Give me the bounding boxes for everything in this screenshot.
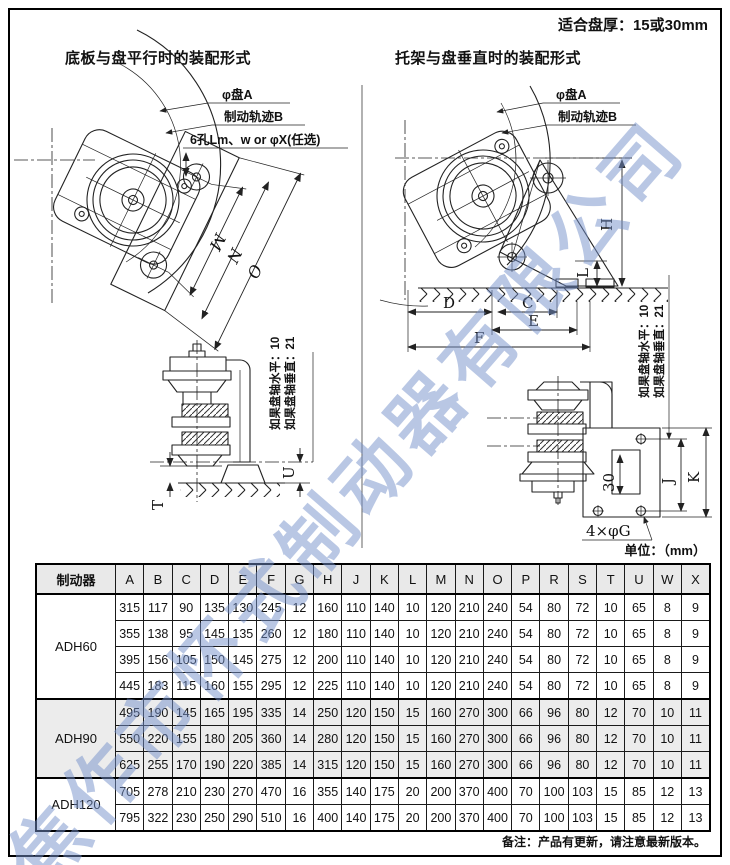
value-cell: 120	[342, 752, 370, 779]
datasheet-page: 适合盘厚：15或30mm 底板与盘平行时的装配形式 托架与盘垂直时的装配形式	[0, 0, 730, 865]
value-cell: 10	[653, 726, 681, 752]
value-cell: 16	[285, 778, 313, 805]
value-cell: 510	[257, 805, 285, 832]
value-cell: 360	[257, 726, 285, 752]
bolt-holes-label: 4×φG	[586, 522, 631, 540]
value-cell: 96	[540, 699, 568, 726]
axis-note-horizontal: 如果盘轴水平：10	[637, 305, 651, 398]
table-row: ADH6031511790135130245121601101401012021…	[36, 594, 710, 621]
value-cell: 180	[314, 621, 342, 647]
value-cell: 280	[314, 726, 342, 752]
table-row: 5502201551802053601428012015015160270300…	[36, 726, 710, 752]
value-cell: 210	[455, 594, 483, 621]
column-header: U	[625, 564, 653, 594]
column-header: P	[512, 564, 540, 594]
value-cell: 278	[144, 778, 172, 805]
value-cell: 115	[172, 673, 200, 700]
value-cell: 70	[625, 699, 653, 726]
value-cell: 138	[144, 621, 172, 647]
value-cell: 70	[625, 752, 653, 779]
value-cell: 10	[398, 621, 426, 647]
value-cell: 150	[370, 752, 398, 779]
value-cell: 70	[512, 805, 540, 832]
value-cell: 90	[172, 594, 200, 621]
header-row: 制动器 ABCDEFGHJKLMNOPRSTUWX	[36, 564, 710, 594]
value-cell: 10	[597, 621, 625, 647]
value-cell: 66	[512, 752, 540, 779]
column-header: B	[144, 564, 172, 594]
value-cell: 400	[483, 805, 511, 832]
column-header: S	[568, 564, 596, 594]
value-cell: 14	[285, 726, 313, 752]
value-cell: 8	[653, 621, 681, 647]
value-cell: 140	[370, 594, 398, 621]
value-cell: 80	[568, 726, 596, 752]
value-cell: 370	[455, 805, 483, 832]
value-cell: 80	[568, 699, 596, 726]
unit-label: 单位：（mm）	[624, 540, 706, 559]
value-cell: 250	[200, 805, 228, 832]
dim-d-label: D	[443, 294, 455, 312]
value-cell: 54	[512, 647, 540, 673]
dim-30-label: 30	[600, 473, 618, 492]
value-cell: 200	[427, 778, 455, 805]
dim-l-label: L	[574, 268, 592, 278]
value-cell: 54	[512, 673, 540, 700]
value-cell: 15	[398, 699, 426, 726]
value-cell: 72	[568, 647, 596, 673]
left-disc-label: φ盘A	[222, 87, 252, 102]
value-cell: 495	[116, 699, 144, 726]
value-cell: 155	[229, 673, 257, 700]
value-cell: 335	[257, 699, 285, 726]
value-cell: 10	[597, 594, 625, 621]
value-cell: 12	[285, 621, 313, 647]
model-cell: ADH90	[36, 699, 116, 778]
value-cell: 240	[483, 647, 511, 673]
value-cell: 80	[540, 647, 568, 673]
value-cell: 275	[257, 647, 285, 673]
value-cell: 16	[285, 805, 313, 832]
value-cell: 150	[200, 647, 228, 673]
value-cell: 14	[285, 699, 313, 726]
value-cell: 225	[314, 673, 342, 700]
model-cell: ADH60	[36, 594, 116, 699]
spec-table: 制动器 ABCDEFGHJKLMNOPRSTUWX ADH60315117901…	[35, 563, 711, 832]
value-cell: 80	[540, 673, 568, 700]
value-cell: 210	[455, 621, 483, 647]
column-header: E	[229, 564, 257, 594]
dim-c-label: C	[522, 294, 533, 312]
value-cell: 150	[370, 726, 398, 752]
value-cell: 85	[625, 805, 653, 832]
value-cell: 110	[342, 594, 370, 621]
value-cell: 11	[681, 752, 710, 779]
table-row: 6252551701902203851431512015015160270300…	[36, 752, 710, 779]
value-cell: 210	[455, 647, 483, 673]
value-cell: 195	[229, 699, 257, 726]
value-cell: 245	[257, 594, 285, 621]
value-cell: 20	[398, 778, 426, 805]
value-cell: 315	[314, 752, 342, 779]
table-row: ADH1207052782102302704701635514017520200…	[36, 778, 710, 805]
value-cell: 10	[597, 673, 625, 700]
value-cell: 140	[370, 673, 398, 700]
value-cell: 175	[370, 778, 398, 805]
value-cell: 20	[398, 805, 426, 832]
dim-j-label: J	[659, 478, 677, 486]
value-cell: 70	[625, 726, 653, 752]
value-cell: 11	[681, 726, 710, 752]
value-cell: 230	[200, 778, 228, 805]
value-cell: 100	[540, 778, 568, 805]
dim-u-label: U	[280, 466, 298, 479]
value-cell: 160	[200, 673, 228, 700]
value-cell: 370	[455, 778, 483, 805]
value-cell: 270	[455, 726, 483, 752]
value-cell: 240	[483, 673, 511, 700]
column-header: T	[597, 564, 625, 594]
left-track-label: 制动轨迹B	[224, 109, 283, 124]
value-cell: 54	[512, 594, 540, 621]
column-header: O	[483, 564, 511, 594]
value-cell: 110	[342, 673, 370, 700]
value-cell: 8	[653, 647, 681, 673]
value-cell: 200	[427, 805, 455, 832]
value-cell: 10	[653, 699, 681, 726]
value-cell: 220	[229, 752, 257, 779]
value-cell: 300	[483, 752, 511, 779]
value-cell: 8	[653, 594, 681, 621]
value-cell: 9	[681, 647, 710, 673]
column-header: W	[653, 564, 681, 594]
value-cell: 155	[172, 726, 200, 752]
right-track-label: 制动轨迹B	[558, 109, 617, 124]
dim-e-label: E	[528, 312, 539, 330]
value-cell: 72	[568, 621, 596, 647]
value-cell: 322	[144, 805, 172, 832]
value-cell: 11	[681, 699, 710, 726]
value-cell: 120	[427, 594, 455, 621]
value-cell: 10	[398, 594, 426, 621]
right-disc-label: φ盘A	[556, 87, 586, 102]
value-cell: 10	[398, 647, 426, 673]
value-cell: 200	[314, 647, 342, 673]
value-cell: 355	[314, 778, 342, 805]
value-cell: 12	[285, 594, 313, 621]
value-cell: 145	[229, 647, 257, 673]
value-cell: 12	[285, 673, 313, 700]
table-row: 3951561051501452751220011014010120210240…	[36, 647, 710, 673]
value-cell: 190	[200, 752, 228, 779]
value-cell: 190	[144, 699, 172, 726]
value-cell: 175	[370, 805, 398, 832]
value-cell: 145	[200, 621, 228, 647]
table-row: ADH9049519014516519533514250120150151602…	[36, 699, 710, 726]
column-header: C	[172, 564, 200, 594]
value-cell: 130	[229, 594, 257, 621]
value-cell: 220	[144, 726, 172, 752]
value-cell: 65	[625, 621, 653, 647]
value-cell: 140	[342, 805, 370, 832]
value-cell: 9	[681, 673, 710, 700]
right-assembly-diagram: H L D C E F 如果盘轴水平：10 如果盘轴垂直：21	[380, 86, 668, 398]
value-cell: 140	[370, 647, 398, 673]
value-cell: 13	[681, 805, 710, 832]
table-row: 7953222302502905101640014017520200370400…	[36, 805, 710, 832]
left-holes-label: 6孔Lm、w or φX(任选)	[190, 132, 320, 147]
value-cell: 170	[172, 752, 200, 779]
value-cell: 14	[285, 752, 313, 779]
value-cell: 72	[568, 594, 596, 621]
table-row: 4451831151601552951222511014010120210240…	[36, 673, 710, 700]
value-cell: 300	[483, 699, 511, 726]
column-header: D	[200, 564, 228, 594]
value-cell: 12	[653, 805, 681, 832]
value-cell: 395	[116, 647, 144, 673]
column-header: J	[342, 564, 370, 594]
value-cell: 10	[597, 647, 625, 673]
side-view-bracket-mount: 30 J K 4×φG	[487, 275, 712, 540]
value-cell: 65	[625, 647, 653, 673]
left-assembly-diagram: M N O φ盘A 制动轨迹B 6孔Lm、w or φX(任选)	[14, 30, 348, 354]
value-cell: 12	[597, 726, 625, 752]
model-cell: ADH120	[36, 778, 116, 831]
footer-note: 备注：产品有更新，请注意最新版本。	[502, 833, 706, 850]
value-cell: 230	[172, 805, 200, 832]
column-header: G	[285, 564, 313, 594]
value-cell: 110	[342, 621, 370, 647]
value-cell: 103	[568, 805, 596, 832]
value-cell: 240	[483, 594, 511, 621]
brake-column-header: 制动器	[36, 564, 116, 594]
column-header: N	[455, 564, 483, 594]
value-cell: 15	[597, 778, 625, 805]
value-cell: 315	[116, 594, 144, 621]
value-cell: 625	[116, 752, 144, 779]
value-cell: 100	[540, 805, 568, 832]
value-cell: 160	[427, 726, 455, 752]
value-cell: 103	[568, 778, 596, 805]
value-cell: 160	[427, 699, 455, 726]
value-cell: 260	[257, 621, 285, 647]
value-cell: 140	[370, 621, 398, 647]
value-cell: 140	[342, 778, 370, 805]
value-cell: 65	[625, 673, 653, 700]
dim-k-label: K	[685, 471, 703, 483]
value-cell: 10	[398, 673, 426, 700]
value-cell: 120	[427, 621, 455, 647]
value-cell: 550	[116, 726, 144, 752]
value-cell: 105	[172, 647, 200, 673]
value-cell: 72	[568, 673, 596, 700]
value-cell: 470	[257, 778, 285, 805]
value-cell: 8	[653, 673, 681, 700]
value-cell: 400	[483, 778, 511, 805]
value-cell: 145	[172, 699, 200, 726]
value-cell: 117	[144, 594, 172, 621]
value-cell: 210	[455, 673, 483, 700]
dim-o-label: O	[243, 261, 266, 281]
value-cell: 355	[116, 621, 144, 647]
value-cell: 400	[314, 805, 342, 832]
value-cell: 156	[144, 647, 172, 673]
value-cell: 66	[512, 699, 540, 726]
value-cell: 110	[342, 647, 370, 673]
dim-h-label: H	[598, 218, 616, 231]
column-header: H	[314, 564, 342, 594]
axis-note-vertical: 如果盘轴垂直：21	[283, 336, 297, 430]
value-cell: 160	[314, 594, 342, 621]
value-cell: 12	[597, 699, 625, 726]
column-header: F	[257, 564, 285, 594]
value-cell: 12	[653, 778, 681, 805]
value-cell: 80	[540, 594, 568, 621]
value-cell: 15	[398, 726, 426, 752]
column-header: K	[370, 564, 398, 594]
technical-drawings: M N O φ盘A 制动轨迹B 6孔Lm、w or φX(任选)	[0, 0, 730, 560]
value-cell: 65	[625, 594, 653, 621]
value-cell: 12	[597, 752, 625, 779]
value-cell: 95	[172, 621, 200, 647]
value-cell: 66	[512, 726, 540, 752]
axis-note-vertical: 如果盘轴垂直：21	[652, 304, 666, 398]
side-view-floor-mount: T U 如果盘轴水平：10 如果盘轴垂直：21	[149, 336, 313, 510]
value-cell: 120	[342, 699, 370, 726]
value-cell: 135	[200, 594, 228, 621]
dim-f-label: F	[474, 329, 484, 347]
dim-t-label: T	[149, 500, 167, 510]
value-cell: 290	[229, 805, 257, 832]
value-cell: 270	[455, 699, 483, 726]
table-row: 3551389514513526012180110140101202102405…	[36, 621, 710, 647]
value-cell: 705	[116, 778, 144, 805]
value-cell: 160	[427, 752, 455, 779]
value-cell: 150	[370, 699, 398, 726]
value-cell: 15	[398, 752, 426, 779]
value-cell: 205	[229, 726, 257, 752]
value-cell: 300	[483, 726, 511, 752]
value-cell: 120	[427, 647, 455, 673]
value-cell: 80	[540, 621, 568, 647]
column-header: A	[116, 564, 144, 594]
value-cell: 13	[681, 778, 710, 805]
value-cell: 240	[483, 621, 511, 647]
value-cell: 120	[342, 726, 370, 752]
right-diagram-labels: φ盘A 制动轨迹B	[497, 87, 636, 133]
value-cell: 70	[512, 778, 540, 805]
value-cell: 9	[681, 594, 710, 621]
value-cell: 165	[200, 699, 228, 726]
value-cell: 15	[597, 805, 625, 832]
value-cell: 9	[681, 621, 710, 647]
column-header: X	[681, 564, 710, 594]
value-cell: 270	[455, 752, 483, 779]
value-cell: 385	[257, 752, 285, 779]
value-cell: 96	[540, 726, 568, 752]
column-header: M	[427, 564, 455, 594]
value-cell: 210	[172, 778, 200, 805]
value-cell: 445	[116, 673, 144, 700]
value-cell: 10	[653, 752, 681, 779]
value-cell: 255	[144, 752, 172, 779]
value-cell: 120	[427, 673, 455, 700]
value-cell: 183	[144, 673, 172, 700]
value-cell: 85	[625, 778, 653, 805]
value-cell: 250	[314, 699, 342, 726]
axis-note-horizontal: 如果盘轴水平：10	[268, 337, 282, 430]
value-cell: 80	[568, 752, 596, 779]
value-cell: 96	[540, 752, 568, 779]
value-cell: 795	[116, 805, 144, 832]
value-cell: 12	[285, 647, 313, 673]
value-cell: 270	[229, 778, 257, 805]
value-cell: 54	[512, 621, 540, 647]
value-cell: 180	[200, 726, 228, 752]
value-cell: 295	[257, 673, 285, 700]
value-cell: 135	[229, 621, 257, 647]
column-header: L	[398, 564, 426, 594]
column-header: R	[540, 564, 568, 594]
